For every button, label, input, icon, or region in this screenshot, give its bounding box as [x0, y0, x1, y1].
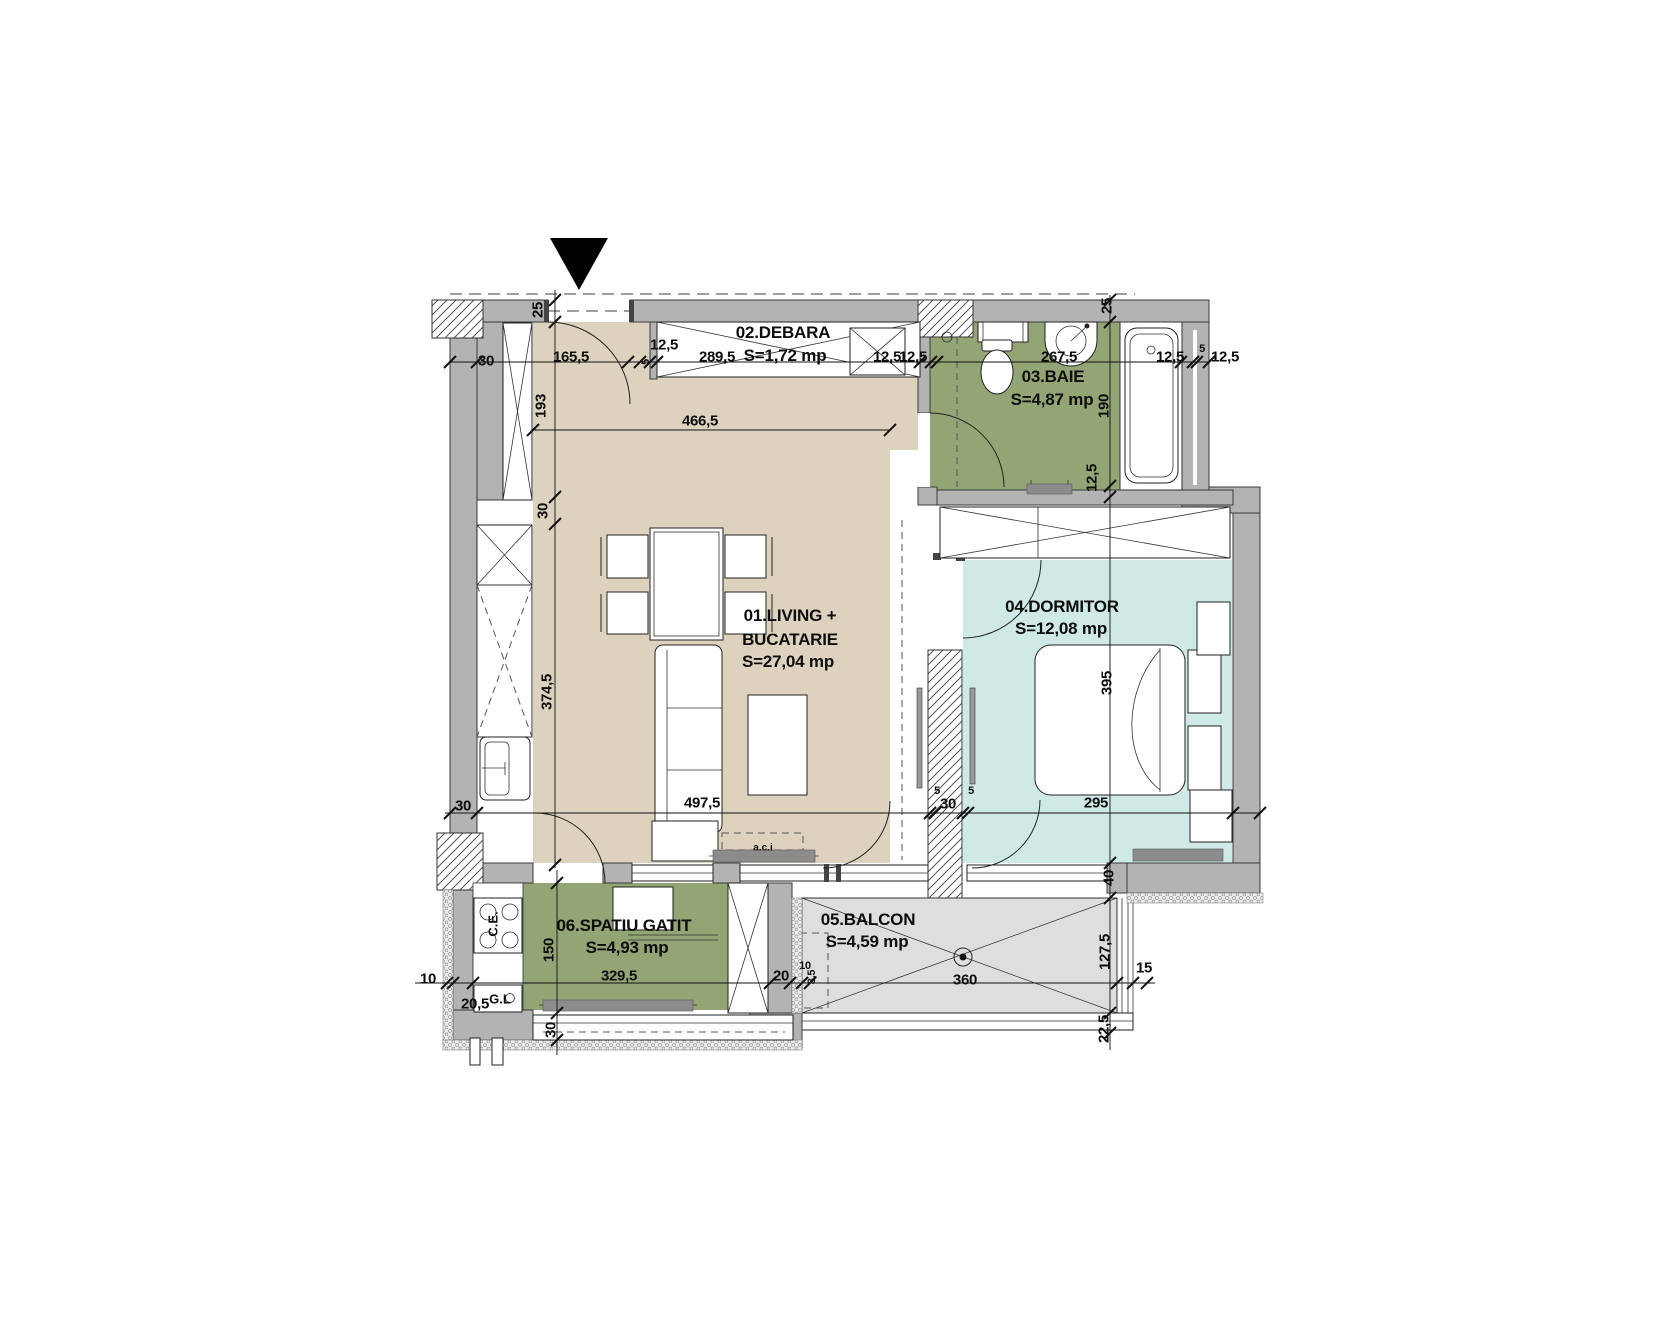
room-label-living-area: S=27,04 mp — [742, 652, 834, 672]
column-hatched — [432, 300, 483, 338]
floor-plan-canvas: 30165,512,55289,512,512,5267,512,5512,52… — [0, 0, 1653, 1323]
dim-label: 40 — [1101, 870, 1118, 886]
dim-label: 374,5 — [539, 674, 556, 710]
insulation — [1127, 893, 1263, 903]
dim-label: 25 — [530, 302, 547, 318]
insulation — [792, 898, 802, 1013]
dim-label: 289,5 — [699, 349, 735, 366]
dim-label: 190 — [1096, 394, 1113, 418]
chair — [607, 592, 648, 634]
dim-label: 165,5 — [553, 349, 589, 366]
dim-label: 12,5 — [873, 349, 901, 366]
door-jamb — [629, 300, 634, 322]
dim-label: 12,5 — [1084, 464, 1101, 492]
room-label-dormitor-area: S=12,08 mp — [1015, 619, 1107, 639]
bedroom-radiator — [1133, 849, 1223, 861]
dim-label: 8,5 — [806, 970, 818, 984]
toilet-tank — [982, 340, 1012, 351]
wall-slot — [1193, 330, 1197, 485]
pipe — [492, 1038, 503, 1065]
dim-label: 360 — [953, 972, 977, 989]
wall — [937, 490, 1233, 505]
room-label-debara-area: S=1,72 mp — [744, 346, 827, 366]
room-label-living-name: 01.LIVING + — [744, 606, 837, 626]
room-label-living-name2: BUCATARIE — [742, 630, 838, 650]
wall — [483, 863, 533, 883]
column-hatched — [918, 300, 973, 337]
dim-label: 466,5 — [682, 413, 718, 430]
dim-label: 20,5 — [461, 996, 489, 1013]
dim-label: 329,5 — [601, 968, 637, 985]
dim-label: 20 — [773, 968, 789, 985]
wall — [477, 322, 505, 500]
wall — [918, 487, 937, 505]
dim-label: 10 — [420, 971, 436, 988]
dim-label: 25 — [1099, 298, 1116, 314]
dim-label: 295 — [1084, 795, 1108, 812]
bathroom-cabinet — [978, 322, 1028, 342]
wall — [603, 863, 632, 883]
balcony-rail-bottom — [802, 1013, 1133, 1030]
dim-label: 30 — [535, 503, 552, 519]
tv-panel — [970, 688, 975, 784]
dim-label: 12,5 — [1211, 349, 1239, 366]
room-label-gatit-name: 06.SPATIU GATIT — [557, 916, 692, 936]
dim-label: 5 — [640, 359, 652, 365]
dim-label: 30 — [455, 798, 471, 815]
toilet — [981, 350, 1013, 394]
room-label-baie-area: S=4,87 mp — [1011, 390, 1094, 410]
dim-label: 30 — [940, 796, 956, 813]
insulation — [443, 890, 453, 1045]
column-hatched — [437, 833, 483, 890]
room-label-gatit-area: S=4,93 mp — [586, 938, 669, 958]
room-label-balcon-name: 05.BALCON — [821, 910, 916, 930]
wall — [768, 883, 792, 1013]
annotation-label: C.E. — [486, 911, 501, 936]
coffee-table — [748, 695, 807, 795]
dining-table — [650, 528, 723, 640]
room-label-dormitor-name: 04.DORMITOR — [1005, 597, 1119, 617]
wall — [713, 863, 740, 883]
balcony-drain-dot — [960, 954, 967, 961]
dim-label: 150 — [541, 938, 558, 962]
tv-panel — [917, 688, 922, 788]
dim-label: 267,5 — [1041, 349, 1077, 366]
dim-label: 395 — [1099, 671, 1116, 695]
balcony-rail — [1117, 898, 1133, 1013]
dim-label: 5 — [1199, 343, 1205, 355]
nightstand — [1188, 726, 1221, 790]
bedroom-dresser — [1190, 790, 1232, 842]
nightstand — [1188, 650, 1221, 713]
dim-label: 15 — [1136, 960, 1152, 977]
annotation-label: G.L — [489, 992, 511, 1007]
dim-label: 12,5 — [899, 349, 927, 366]
dim-label: 12,5 — [650, 337, 678, 354]
room-label-balcon-area: S=4,59 mp — [826, 932, 909, 952]
dim-label: 193 — [533, 394, 550, 418]
kitchen-island — [652, 821, 718, 861]
dim-label: 22,5 — [1096, 1015, 1113, 1043]
door-opening-bath — [918, 413, 930, 487]
room-label-debara-name: 02.DEBARA — [736, 323, 831, 343]
dim-label: 30 — [478, 353, 494, 370]
chair — [607, 535, 648, 578]
dim-label: 127,5 — [1097, 934, 1114, 970]
kitchen-radiator — [543, 1000, 693, 1011]
dim-label: 497,5 — [684, 795, 720, 812]
towel-radiator — [1027, 484, 1072, 494]
bedroom-cabinet — [1197, 602, 1230, 655]
wall — [453, 1010, 533, 1040]
chair — [725, 535, 766, 578]
dim-label: 30 — [543, 1022, 560, 1038]
wall — [450, 322, 477, 863]
entrance-arrow-icon — [550, 238, 608, 290]
wall — [1127, 863, 1260, 893]
window-kitchen — [533, 1015, 793, 1040]
dim-label: 12,5 — [1156, 349, 1184, 366]
column-hatched — [928, 650, 962, 898]
dim-label: 5 — [968, 785, 974, 797]
annotation-label: a.c.i — [753, 843, 772, 854]
room-label-baie-name: 03.BAIE — [1022, 367, 1085, 387]
pipe — [470, 1038, 480, 1065]
